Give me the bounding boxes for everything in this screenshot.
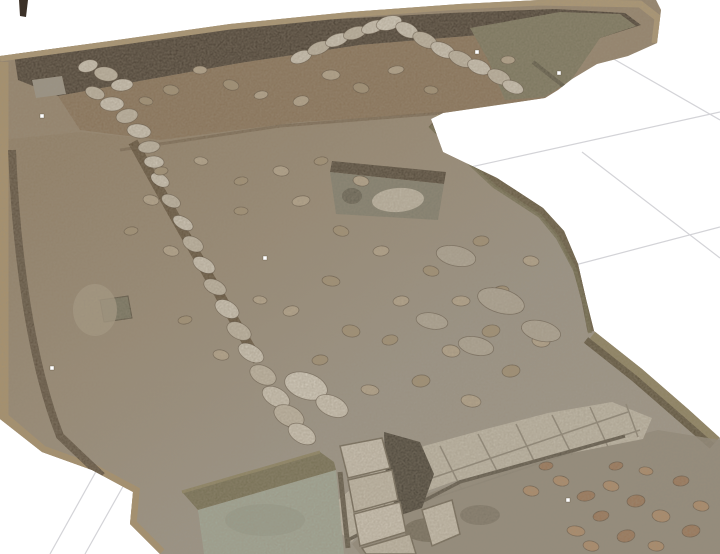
survey-marker	[40, 114, 44, 118]
survey-marker	[566, 498, 570, 502]
survey-marker	[50, 366, 54, 370]
3d-viewer-stage	[0, 0, 720, 554]
survey-marker	[557, 71, 561, 75]
survey-marker	[475, 50, 479, 54]
3d-viewport[interactable]	[0, 0, 720, 554]
survey-marker	[263, 256, 267, 260]
